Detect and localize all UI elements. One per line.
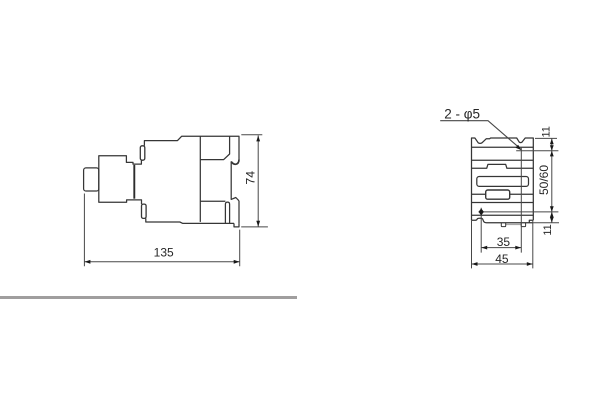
- svg-text:35: 35: [497, 235, 511, 249]
- svg-text:11: 11: [542, 224, 554, 235]
- svg-text:11: 11: [540, 126, 552, 137]
- svg-text:2 - φ5: 2 - φ5: [444, 107, 480, 122]
- svg-text:50/60: 50/60: [537, 165, 551, 195]
- svg-text:45: 45: [495, 252, 509, 266]
- svg-text:74: 74: [244, 171, 258, 185]
- svg-text:135: 135: [154, 245, 174, 259]
